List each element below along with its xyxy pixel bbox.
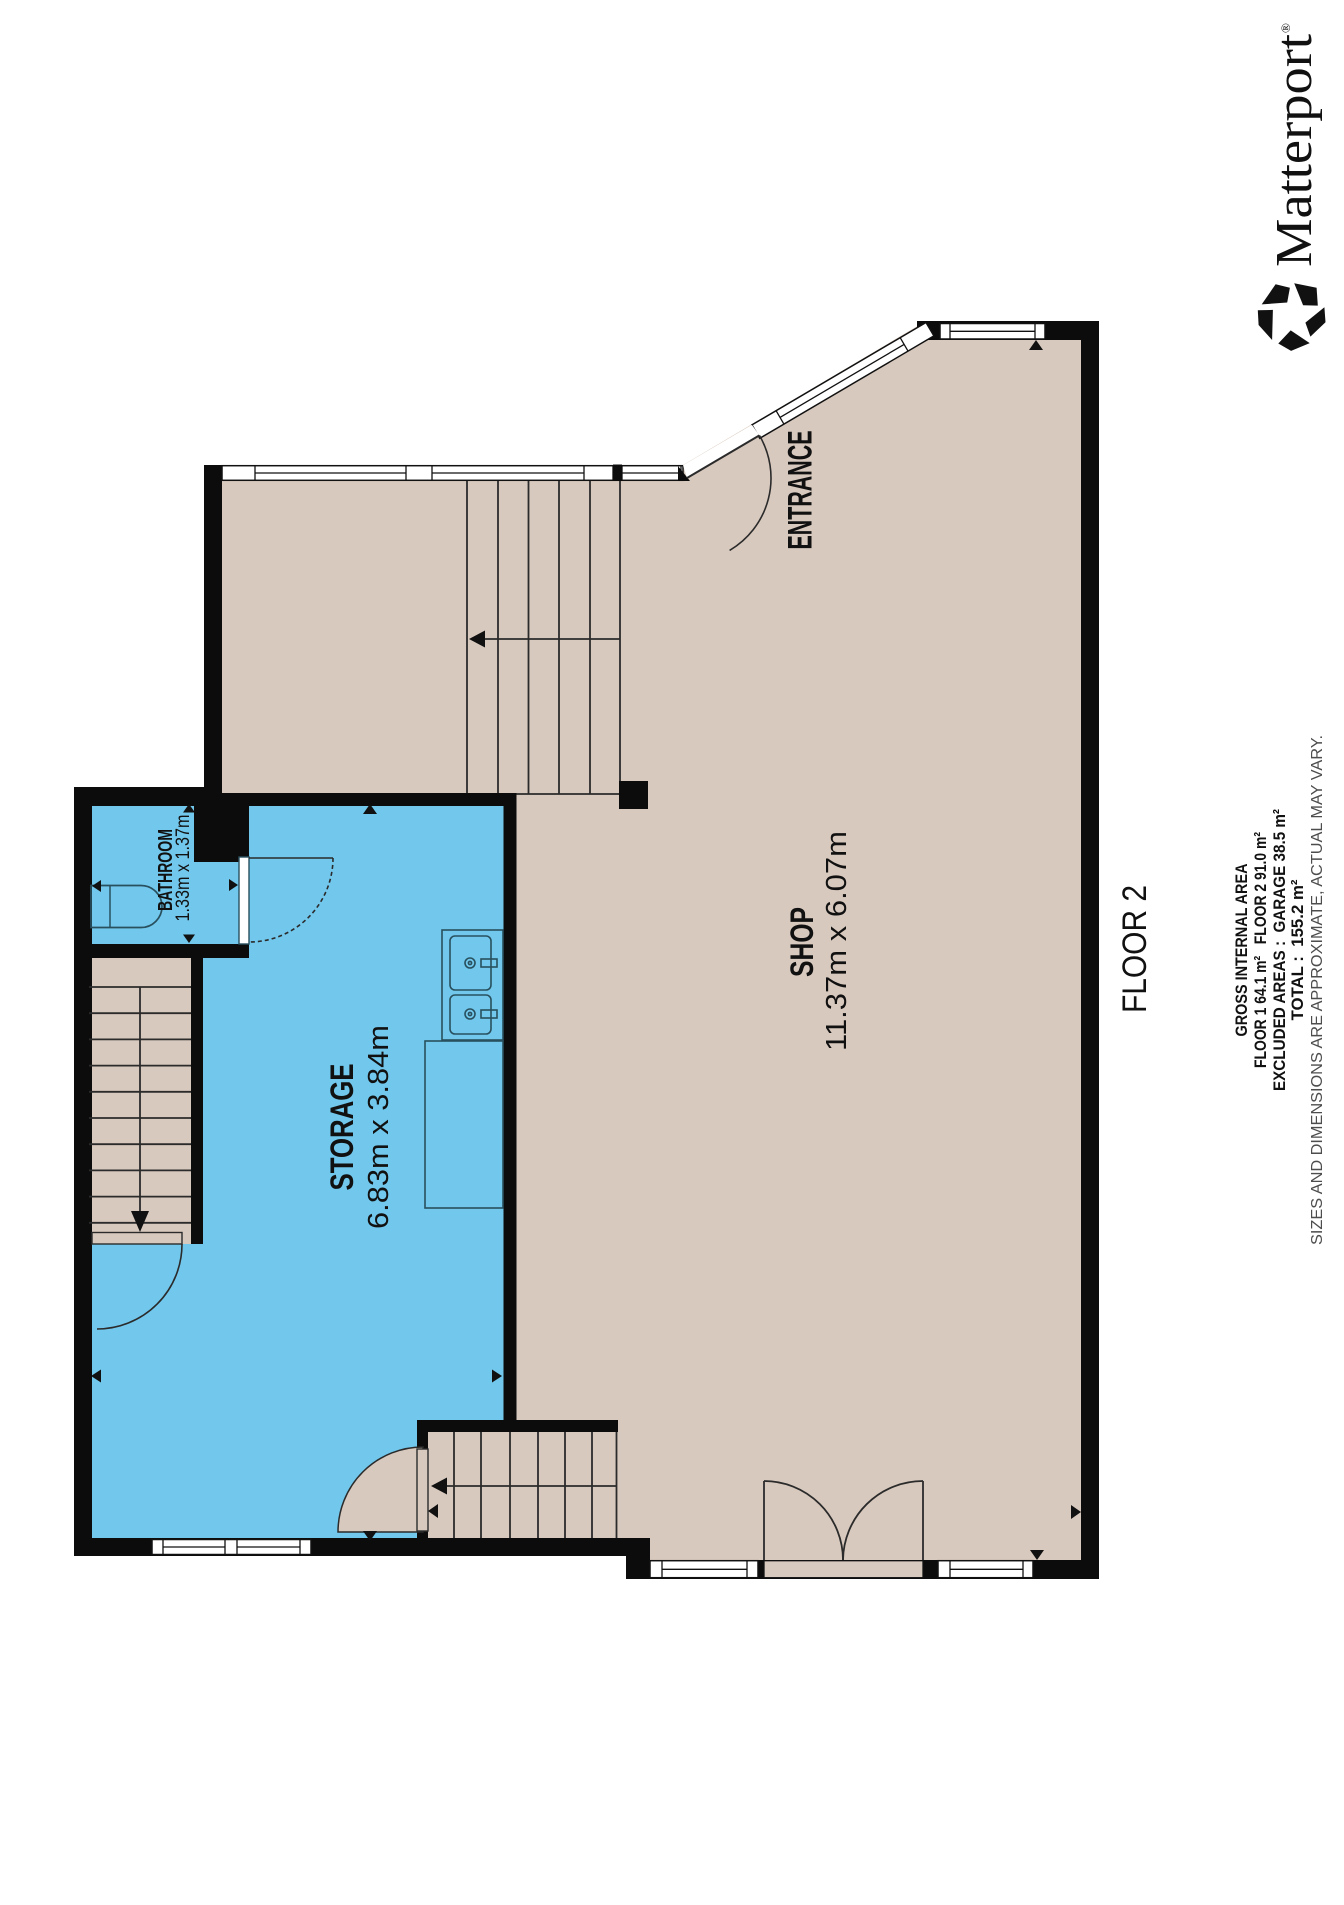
svg-text:6.83m x 3.84m: 6.83m x 3.84m [363,1025,395,1229]
svg-text:®: ® [1278,23,1293,33]
svg-text:11.37m x 6.07m: 11.37m x 6.07m [821,831,853,1051]
svg-text:ENTRANCE: ENTRANCE [782,431,820,550]
svg-text:TOTAL : 155.2 m²: TOTAL : 155.2 m² [1289,879,1307,1020]
svg-text:Matterport: Matterport [1266,33,1323,267]
svg-text:SHOP: SHOP [784,907,820,977]
svg-text:SIZES AND DIMENSIONS ARE APPRO: SIZES AND DIMENSIONS ARE APPROXIMATE, AC… [1309,735,1326,1245]
svg-text:STORAGE: STORAGE [324,1064,360,1191]
svg-text:EXCLUDED AREAS : GARAGE 38.5: EXCLUDED AREAS : GARAGE 38.5 m² [1271,809,1289,1091]
svg-text:FLOOR 2: FLOOR 2 [1116,885,1154,1013]
svg-text:GROSS INTERNAL AREA: GROSS INTERNAL AREA [1233,863,1251,1036]
svg-text:1.33m x 1.37m: 1.33m x 1.37m [173,815,194,922]
svg-text:FLOOR 1 64.1 m² FLOOR 2 91.0: FLOOR 1 64.1 m² FLOOR 2 91.0 m² [1252,832,1270,1068]
